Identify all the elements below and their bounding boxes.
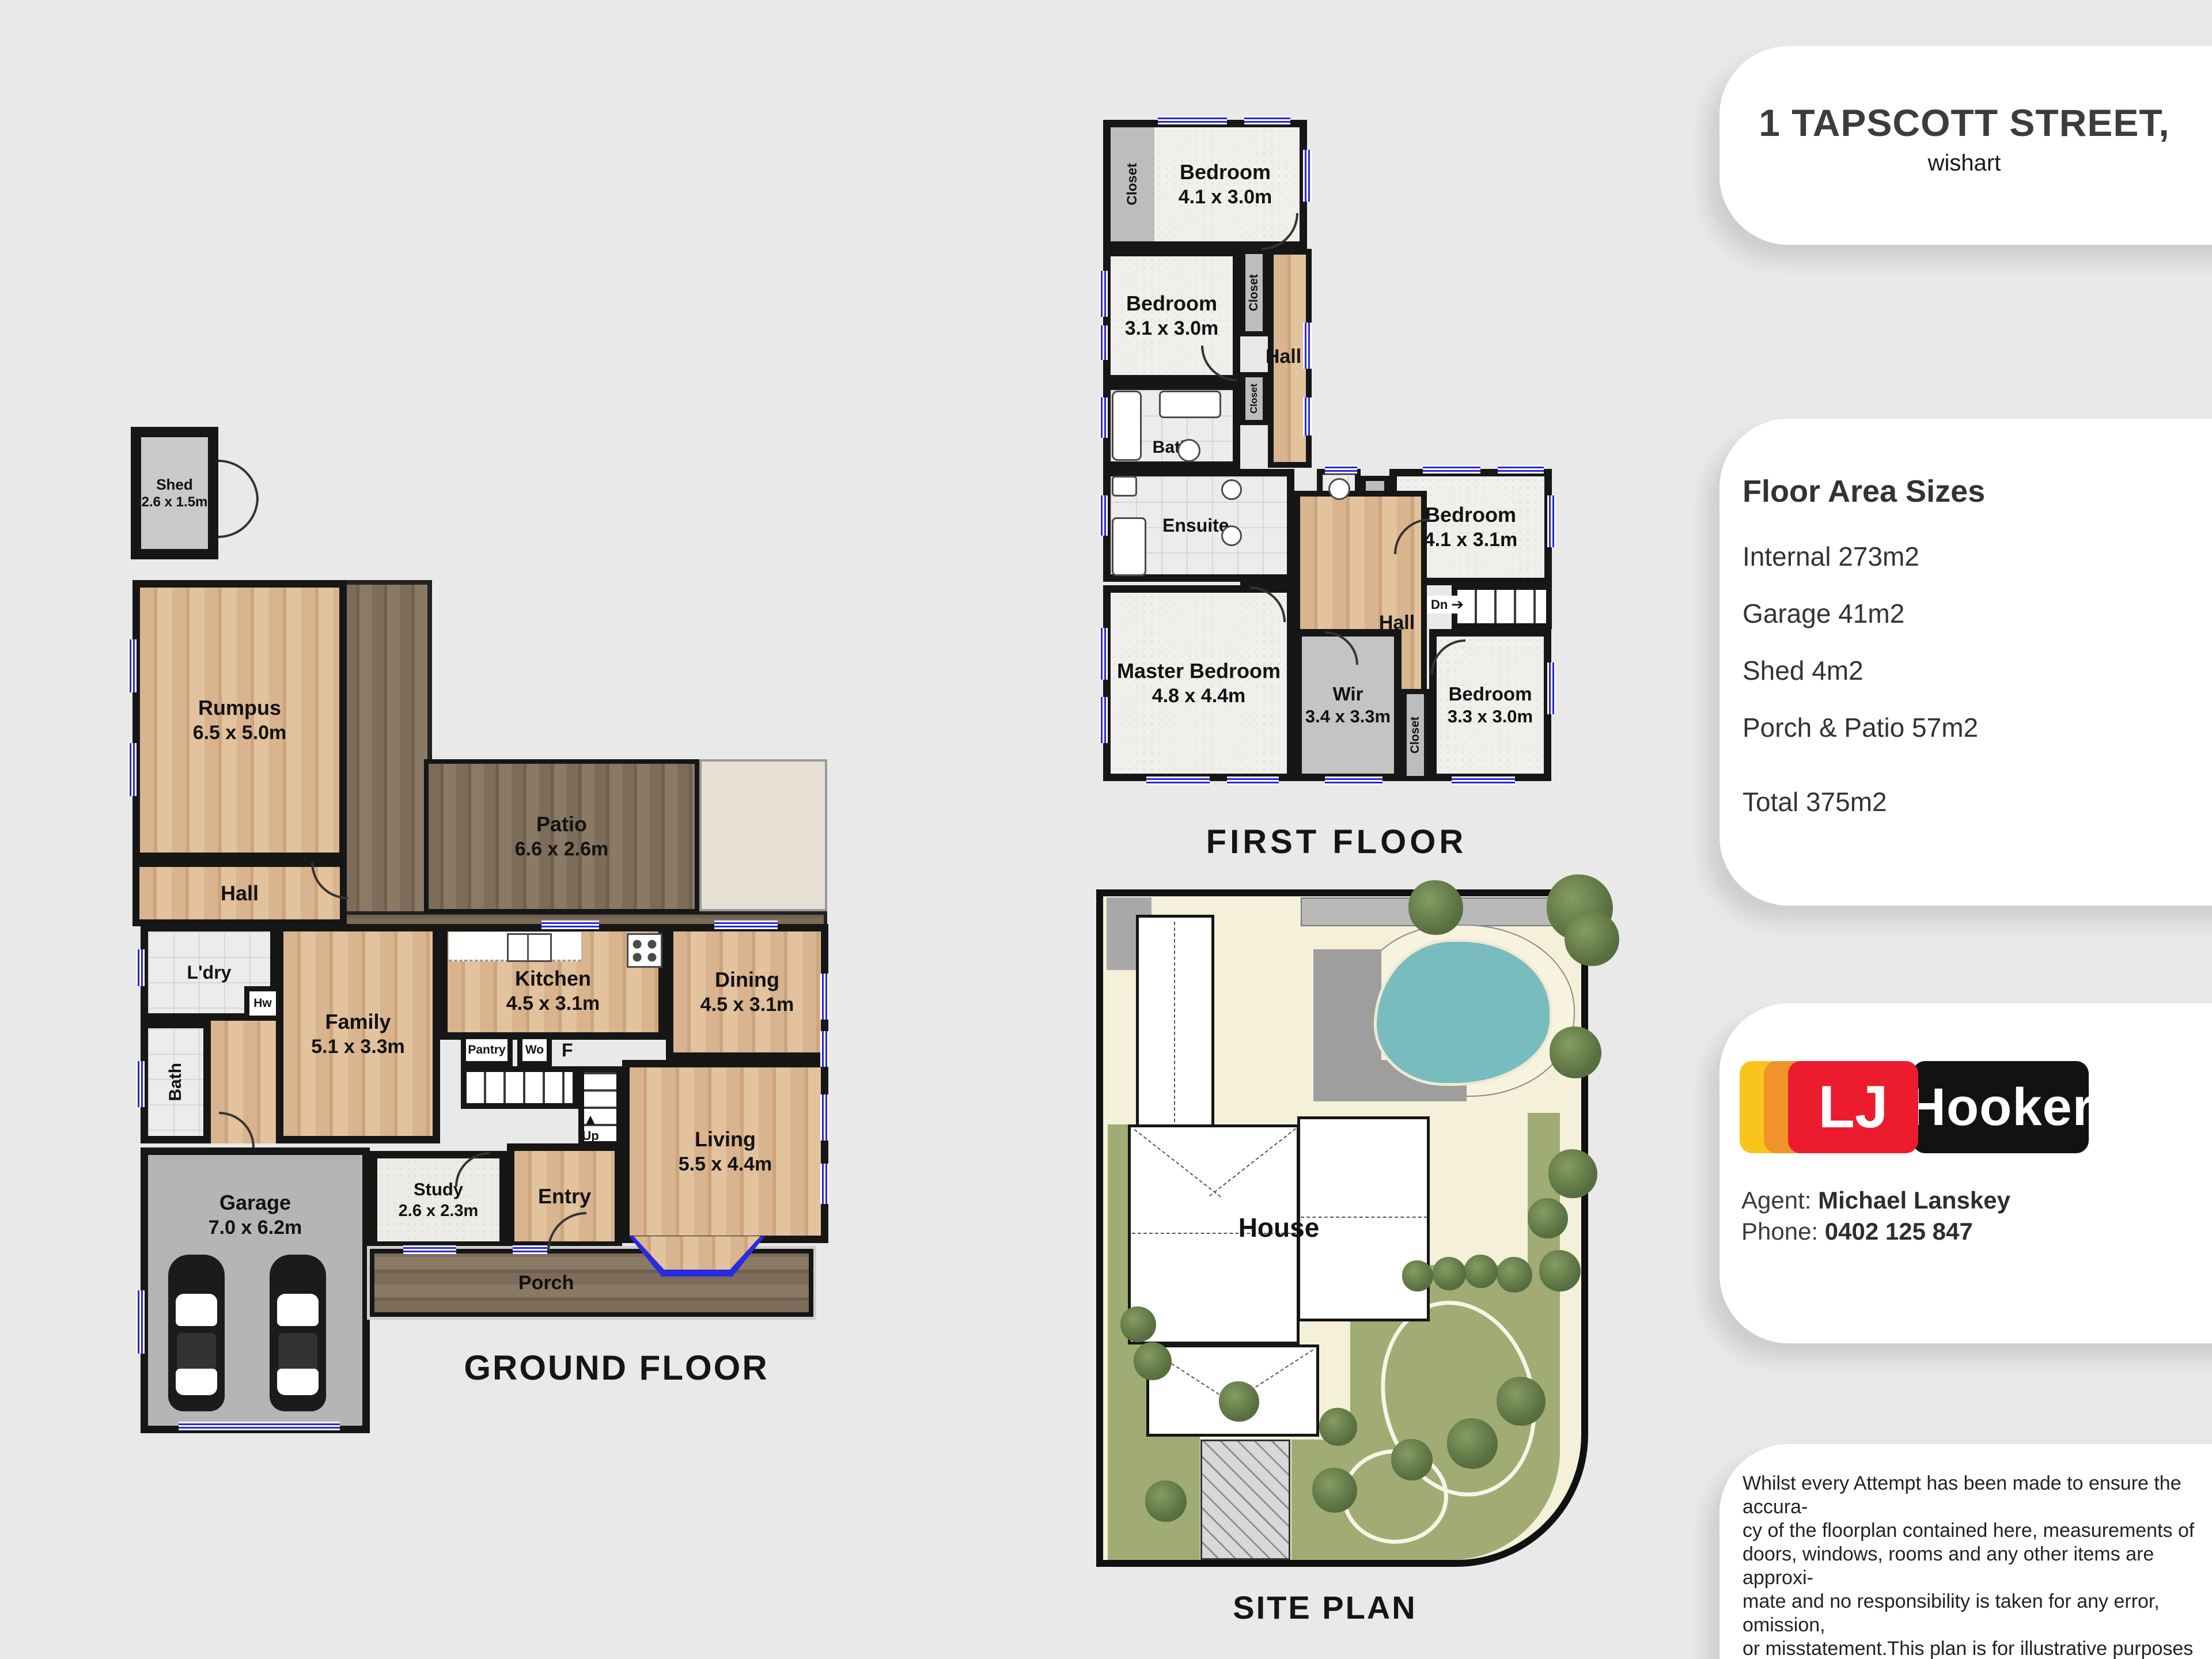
window	[1452, 777, 1515, 785]
window	[136, 1290, 145, 1354]
closet: Closet	[1402, 689, 1429, 781]
down-arrow-icon: ➔	[1451, 596, 1464, 613]
floor-areas-card: Floor Area Sizes Internal 273m2 Garage 4…	[1719, 419, 2212, 906]
room-living: Living 5.5 x 4.4m	[622, 1060, 828, 1243]
bathtub-icon	[1112, 391, 1142, 461]
window	[128, 743, 137, 796]
ljhooker-logo: Hooker LJ	[1740, 1061, 2089, 1153]
site-house-label: House	[1221, 1212, 1336, 1243]
tree-icon	[1447, 1418, 1498, 1469]
patio-screened-area	[699, 759, 827, 911]
deck-strip	[340, 580, 432, 969]
window	[714, 921, 778, 929]
phone-line: Phone: 0402 125 847	[1741, 1218, 1973, 1245]
floor-areas-heading: Floor Area Sizes	[1743, 474, 2212, 509]
agent-card: Hooker LJ Agent: Michael Lanskey Phone: …	[1719, 1003, 2212, 1343]
floor-area-item: Garage 41m2	[1743, 598, 2212, 629]
up-arrow-icon: ▲	[583, 1111, 598, 1128]
tree-icon	[1120, 1306, 1156, 1342]
stairs-up-marker: ▲ Up	[570, 1111, 611, 1154]
tree-icon	[1134, 1342, 1172, 1380]
address-line2: wishart	[1743, 150, 2186, 176]
tree-icon	[1145, 1480, 1187, 1522]
disclaimer-line: mate and no responsibility is taken for …	[1743, 1590, 2212, 1637]
agent-name: Michael Lanskey	[1818, 1187, 2010, 1214]
room-bath-ground: Bath	[141, 1021, 211, 1143]
tree-icon	[1548, 1149, 1597, 1198]
stove-icon	[627, 933, 662, 968]
tree-icon	[1565, 911, 1619, 966]
door-arc	[218, 498, 259, 538]
room-hot-water: Hw	[244, 986, 281, 1021]
tree-icon	[1497, 1377, 1546, 1426]
closet: Closet	[1111, 127, 1154, 241]
closet: Closet	[1240, 372, 1268, 425]
window	[1146, 777, 1210, 785]
phone-number: 0402 125 847	[1825, 1218, 1973, 1245]
window	[820, 1031, 829, 1067]
shower-icon	[1112, 517, 1146, 576]
window	[1325, 465, 1357, 474]
window	[128, 639, 137, 692]
toilet-icon	[1112, 476, 1137, 497]
disclaimer-line: doors, windows, rooms and any other item…	[1743, 1543, 2212, 1590]
room-wall-oven: Wo	[517, 1034, 552, 1066]
room-pantry: Pantry	[461, 1034, 513, 1066]
disclaimer-line: cy of the floorplan contained here, meas…	[1743, 1519, 2212, 1543]
stairs-down-marker: Dn ➔	[1427, 596, 1467, 613]
logo-red-panel: LJ	[1788, 1061, 1918, 1153]
tree-icon	[1539, 1250, 1581, 1291]
window	[1227, 777, 1279, 785]
car-icon	[168, 1255, 225, 1411]
first-floor-title: FIRST FLOOR	[1184, 823, 1489, 861]
tree-icon	[1497, 1257, 1532, 1293]
fridge-label: F	[562, 1040, 573, 1061]
window	[136, 1061, 145, 1107]
disclaimer-line: Whilst every Attempt has been made to en…	[1743, 1472, 2212, 1519]
window	[513, 1245, 547, 1254]
room-porch: Porch	[370, 1249, 813, 1317]
window	[1303, 150, 1312, 202]
hall-label: Hall	[1243, 346, 1324, 368]
tree-icon	[1528, 1198, 1568, 1238]
window	[541, 921, 599, 929]
room-label: Shed	[156, 475, 193, 494]
logo-lj-text: LJ	[1818, 1073, 1888, 1142]
window	[1099, 325, 1108, 360]
floor-area-total: Total 375m2	[1743, 786, 2212, 817]
logo-black-panel: Hooker	[1912, 1061, 2089, 1153]
window	[1498, 465, 1544, 474]
phone-label: Phone:	[1741, 1218, 1818, 1245]
sink-icon	[1221, 479, 1242, 500]
site-boundary: House	[1096, 889, 1588, 1567]
car-icon	[270, 1255, 326, 1411]
site-house-wing	[1136, 915, 1214, 1129]
toilet-icon	[1177, 439, 1200, 462]
tree-icon	[1312, 1468, 1357, 1513]
window	[1244, 116, 1290, 124]
tree-icon	[1464, 1255, 1498, 1288]
tree-icon	[1550, 1027, 1601, 1078]
window	[1423, 465, 1480, 474]
sink-icon	[507, 933, 552, 962]
window	[1325, 777, 1382, 785]
floorplan-sheet: Shed 2.6 x 1.5m Patio 6.6 x 2.6m Rumpus …	[0, 0, 2212, 1659]
site-plan-title: SITE PLAN	[1181, 1589, 1469, 1626]
floor-area-item: Shed 4m2	[1743, 655, 2212, 686]
hall-label: Hall	[1357, 612, 1437, 634]
bathtub-icon	[1159, 391, 1221, 418]
closet: Closet	[1240, 249, 1268, 336]
window	[1547, 662, 1556, 714]
tree-icon	[1402, 1260, 1433, 1291]
disclaimer-line: or misstatement.This plan is for illustr…	[1743, 1637, 2212, 1659]
window	[820, 1094, 829, 1141]
room-rumpus: Rumpus 6.5 x 5.0m	[132, 580, 347, 860]
tree-icon	[1391, 1439, 1433, 1480]
room-dining: Dining 4.5 x 3.1m	[666, 924, 828, 1060]
agent-line: Agent: Michael Lanskey	[1741, 1187, 2010, 1214]
address-line1: 1 TAPSCOTT STREET,	[1743, 101, 2186, 145]
window	[1099, 397, 1108, 438]
window	[1099, 697, 1108, 743]
window	[1547, 495, 1556, 547]
window	[820, 1164, 829, 1204]
floor-area-item: Internal 273m2	[1743, 541, 2212, 572]
window	[403, 1245, 456, 1254]
toilet-icon	[1328, 478, 1350, 500]
logo-hooker-text: Hooker	[1908, 1077, 2094, 1138]
window	[820, 974, 829, 1020]
window	[1099, 271, 1108, 317]
window	[1099, 628, 1108, 680]
address-card: 1 TAPSCOTT STREET, wishart	[1719, 46, 2212, 245]
window	[1303, 323, 1312, 369]
garage-door	[179, 1422, 340, 1430]
pool	[1374, 939, 1552, 1086]
floor-area-item: Porch & Patio 57m2	[1743, 712, 2212, 743]
sink-icon	[1221, 525, 1242, 546]
window	[1099, 495, 1108, 536]
tree-icon	[1319, 1408, 1357, 1446]
agent-label: Agent:	[1741, 1187, 1811, 1214]
room-shed: Shed 2.6 x 1.5m	[131, 427, 218, 559]
roof-ridge-line	[1174, 922, 1175, 1122]
room-patio: Patio 6.6 x 2.6m	[424, 759, 699, 914]
ground-floor-title: GROUND FLOOR	[455, 1348, 778, 1388]
window	[1303, 397, 1312, 435]
tree-icon	[1433, 1257, 1466, 1290]
tree-icon	[1219, 1381, 1259, 1422]
window	[1158, 116, 1227, 124]
disclaimer-card: Whilst every Attempt has been made to en…	[1719, 1444, 2212, 1659]
tree-icon	[1408, 880, 1463, 935]
room-family: Family 5.1 x 3.3m	[276, 924, 440, 1143]
driveway	[1200, 1440, 1290, 1560]
door-arc	[218, 460, 259, 500]
stairs-ground-flight	[461, 1066, 578, 1109]
window	[136, 949, 145, 986]
